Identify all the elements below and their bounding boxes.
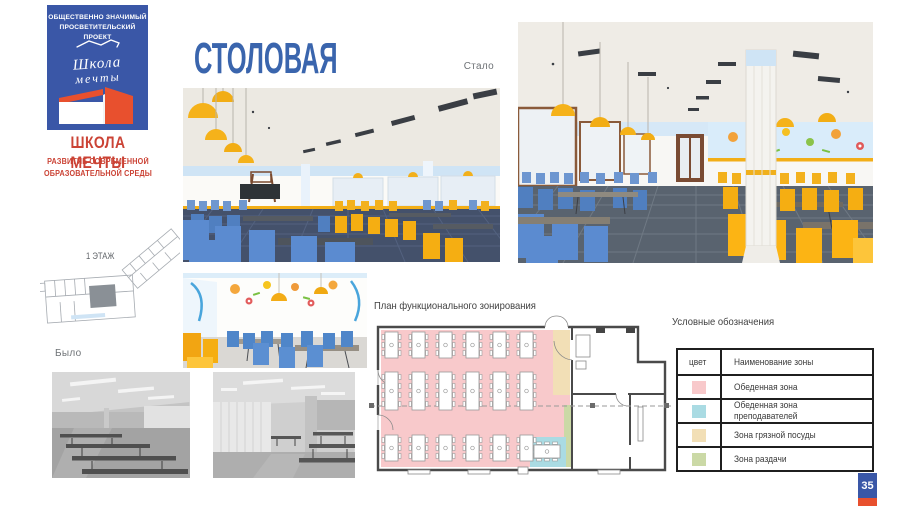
- before-label: Было: [55, 348, 81, 359]
- logo-tagline-line2: ОБРАЗОВАТЕЛЬНОЙ СРЕДЫ: [44, 169, 152, 178]
- sketch-left-wing: [40, 275, 135, 323]
- swatch-teachers: [692, 405, 706, 418]
- legend-zone-name: Зона раздачи: [722, 448, 872, 470]
- center-door: [676, 134, 704, 182]
- legend-row-dirty-dishes: Зона грязной посуды: [678, 422, 872, 446]
- page-title: СТОЛОВАЯ: [194, 34, 338, 84]
- logo-roof-doodle-icon: [75, 39, 123, 49]
- after-label: Стало: [456, 61, 494, 72]
- logo-script-text: Школа мечты: [46, 53, 149, 88]
- logo-school-of-dream: ОБЩЕСТВЕННО ЗНАЧИМЫЙ ПРОСВЕТИТЕЛЬСКИЙ ПР…: [47, 5, 148, 130]
- swatch-dirty-dishes: [692, 429, 706, 442]
- page-number: 35: [858, 473, 877, 498]
- floor-label: 1 ЭТАЖ: [86, 251, 114, 261]
- legend-col-color: цвет: [678, 350, 722, 374]
- zone-dirty-dishes: [553, 330, 570, 395]
- logo-building-icon: [57, 84, 138, 126]
- zoning-plan-label: План функционального зонирования: [374, 300, 536, 312]
- logo-tagline: РАЗВИТИЕ СОВРЕМЕННОЙ ОБРАЗОВАТЕЛЬНОЙ СРЕ…: [42, 156, 154, 179]
- render-after-large: [518, 22, 873, 263]
- render-after-mural: [183, 273, 367, 368]
- page-number-badge: 35: [858, 473, 877, 506]
- swatch-serving: [692, 453, 706, 466]
- page-badge-accent: [858, 498, 877, 506]
- logo-program-line1: ОБЩЕСТВЕННО ЗНАЧИМЫЙ: [48, 14, 146, 21]
- legend-col-zone-name: Наименование зоны: [722, 350, 872, 374]
- legend-row-serving: Зона раздачи: [678, 446, 872, 470]
- legend-table: цвет Наименование зоны Обеденная зона Об…: [676, 348, 874, 472]
- legend-row-dining: Обеденная зона: [678, 374, 872, 398]
- legend-header-row: цвет Наименование зоны: [678, 350, 872, 374]
- photo-before-2: [213, 372, 355, 478]
- center-column: [742, 50, 780, 263]
- key-floor-plan-sketch: [40, 220, 180, 332]
- zoning-plan-drawing: [368, 315, 673, 487]
- slide-canteen: ОБЩЕСТВЕННО ЗНАЧИМЫЙ ПРОСВЕТИТЕЛЬСКИЙ ПР…: [0, 0, 900, 506]
- swatch-dining: [692, 381, 706, 394]
- sketch-right-wing: [122, 229, 180, 289]
- legend-row-teachers: Обеденная зона преподавателей: [678, 398, 872, 422]
- legend-heading: Условные обозначения: [672, 316, 774, 328]
- legend-zone-name: Обеденная зона: [722, 376, 872, 398]
- legend-zone-name: Обеденная зона преподавателей: [722, 400, 872, 422]
- legend-zone-name: Зона грязной посуды: [722, 424, 872, 446]
- teachers-table: [534, 442, 560, 461]
- photo-before-1: [52, 372, 190, 478]
- logo-tagline-line1: РАЗВИТИЕ СОВРЕМЕННОЙ: [47, 157, 149, 166]
- render-after-wide: [183, 88, 500, 262]
